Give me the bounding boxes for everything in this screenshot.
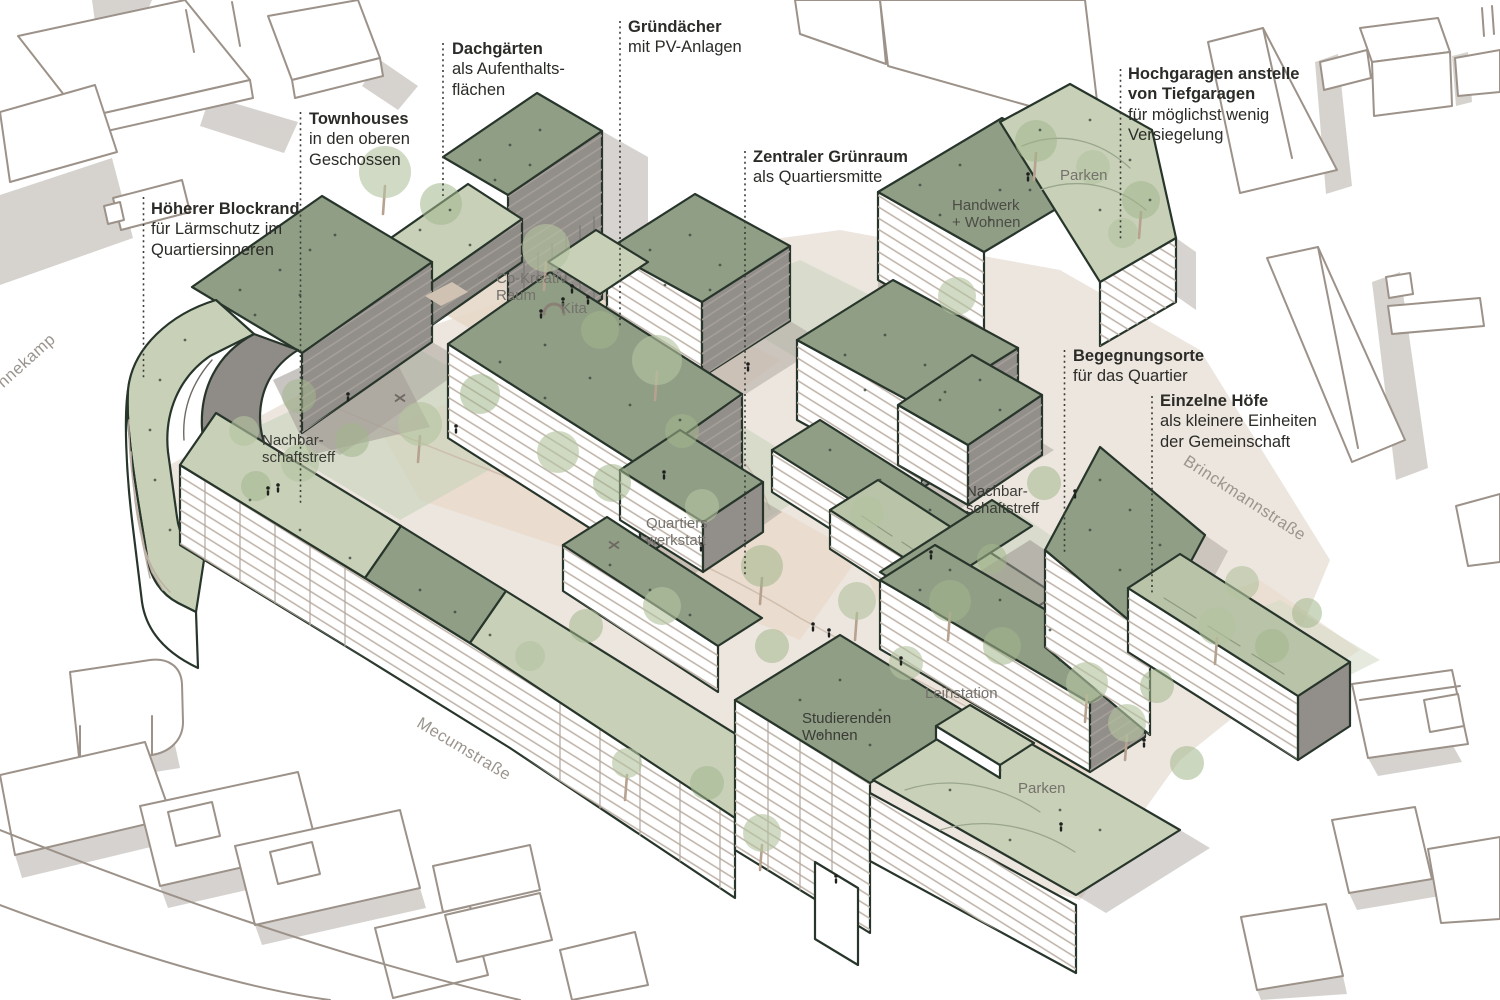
callout-line: als Aufenthalts- [452, 59, 565, 79]
label-parken-nord: Parken [1060, 168, 1108, 185]
label-leihstation: Leihstation [925, 686, 998, 703]
callout-line: der Gemeinschaft [1160, 432, 1317, 452]
callout-einzelne-hoefe: Einzelne Höfe als kleinere Einheiten der… [1160, 391, 1317, 452]
masterplan-diagram: Höherer Blockrand für Lärmschutz im Quar… [0, 0, 1500, 1000]
callout-line: mit PV-Anlagen [628, 37, 742, 57]
callout-line: in den oberen [309, 129, 410, 149]
masterplan-illustration [0, 0, 1500, 1000]
callout-line: Begegnungsorte [1073, 346, 1204, 366]
callout-line: als kleinere Einheiten [1160, 411, 1317, 431]
label-co-kreativ-raum: Co-Kreativ Raum [496, 271, 567, 305]
callout-townhouses: Townhouses in den oberen Geschossen [309, 109, 410, 170]
label-nachbarschaftstreff-ost: Nachbar- schaftstreff [966, 484, 1039, 518]
callout-begegnungsorte: Begegnungsorte für das Quartier [1073, 346, 1204, 387]
callout-line: für das Quartier [1073, 366, 1204, 386]
callout-hoeherer-blockrand: Höherer Blockrand für Lärmschutz im Quar… [151, 199, 300, 260]
callout-dachgaerten: Dachgärten als Aufenthalts- flächen [452, 39, 565, 100]
label-nachbarschaftstreff-west: Nachbar- schaftstreff [262, 433, 335, 467]
callout-line: für möglichst wenig [1128, 105, 1299, 125]
label-quartierswerkstatt: Quartiers werkstatt [646, 516, 708, 550]
label-handwerk-wohnen: Handwerk + Wohnen [952, 198, 1021, 232]
callout-line: Versiegelung [1128, 125, 1299, 145]
callout-line: Gründächer [628, 17, 742, 37]
callout-line: Hochgaragen anstelle [1128, 64, 1299, 84]
callout-line: Geschossen [309, 150, 410, 170]
callout-line: Quartiersinneren [151, 240, 300, 260]
callout-line: von Tiefgaragen [1128, 84, 1299, 104]
callout-hochgaragen: Hochgaragen anstelle von Tiefgaragen für… [1128, 64, 1299, 146]
callout-line: Townhouses [309, 109, 410, 129]
callout-line: für Lärmschutz im [151, 219, 300, 239]
callout-line: Zentraler Grünraum [753, 147, 908, 167]
label-parken-sued: Parken [1018, 781, 1066, 798]
callout-line: flächen [452, 80, 565, 100]
label-kita: Kita [561, 301, 587, 318]
callout-line: Höherer Blockrand [151, 199, 300, 219]
callout-line: Einzelne Höfe [1160, 391, 1317, 411]
callout-zentraler-gruenraum: Zentraler Grünraum als Quartiersmitte [753, 147, 908, 188]
callout-line: Dachgärten [452, 39, 565, 59]
label-studierenden-wohnen: Studierenden Wohnen [802, 711, 891, 745]
callout-line: als Quartiersmitte [753, 167, 908, 187]
callout-gruendaecher: Gründächer mit PV-Anlagen [628, 17, 742, 58]
